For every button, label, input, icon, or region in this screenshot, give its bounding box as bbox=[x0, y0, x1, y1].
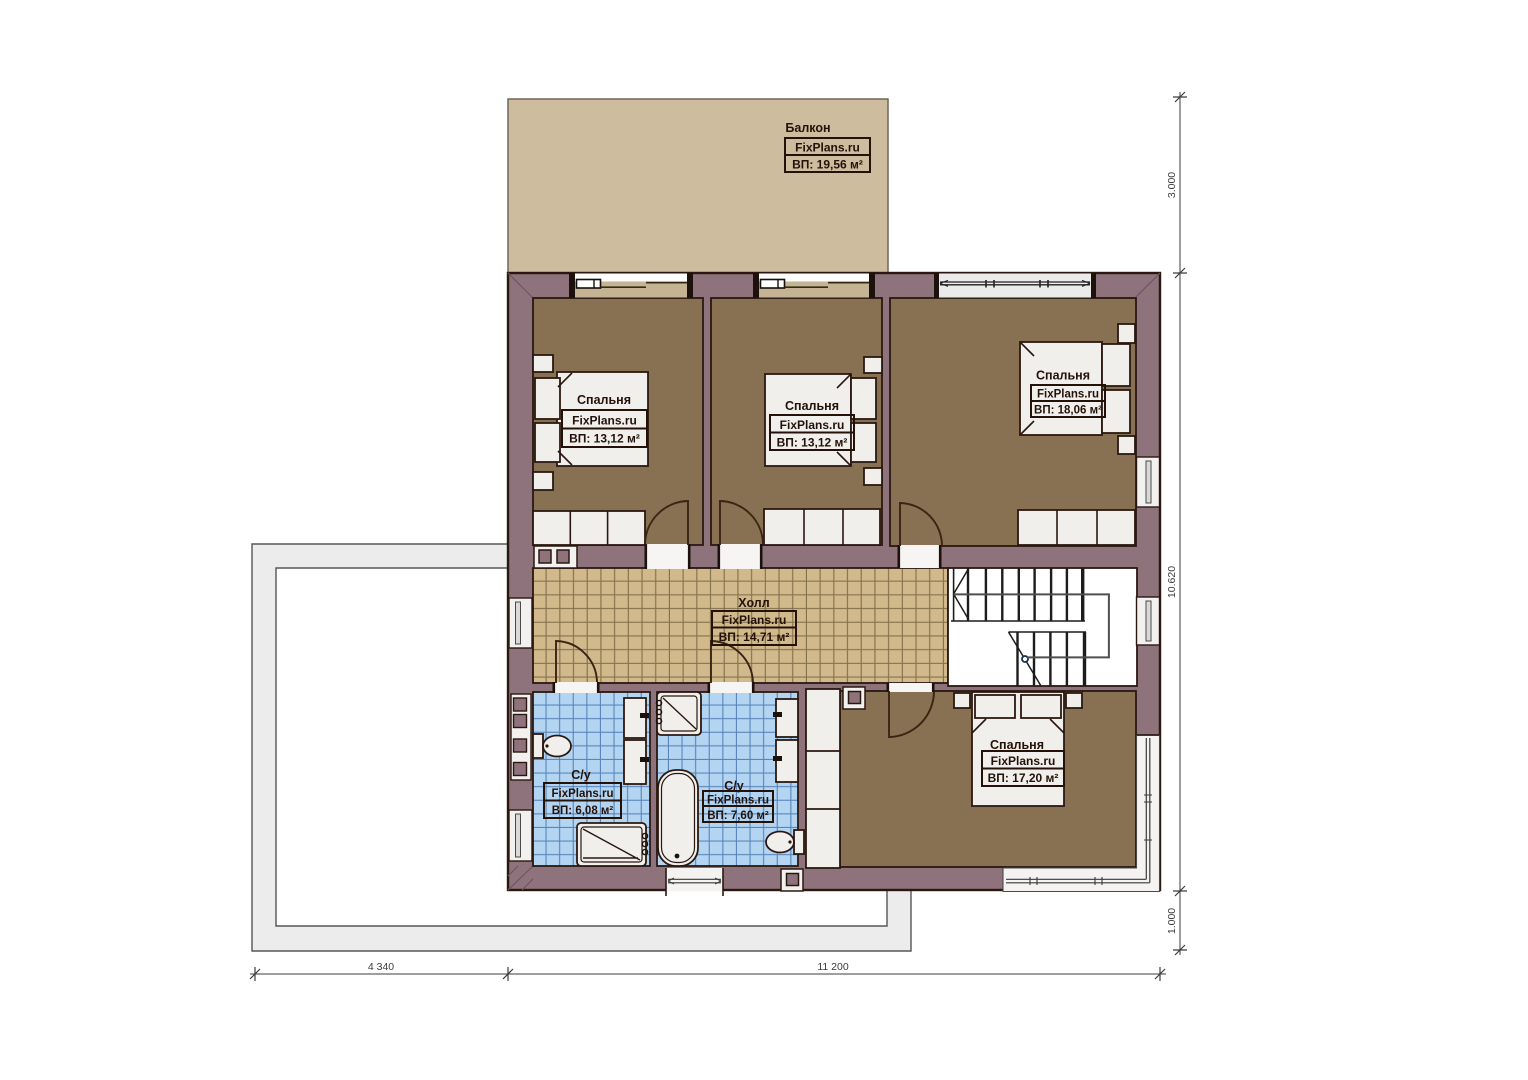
svg-text:FixPlans.ru: FixPlans.ru bbox=[780, 418, 845, 432]
svg-text:FixPlans.ru: FixPlans.ru bbox=[795, 141, 860, 155]
svg-text:ВП: 13,12 м²: ВП: 13,12 м² bbox=[777, 436, 848, 450]
svg-text:FixPlans.ru: FixPlans.ru bbox=[991, 754, 1056, 768]
svg-text:4 340: 4 340 bbox=[368, 961, 394, 973]
svg-text:Спальня: Спальня bbox=[785, 399, 839, 413]
svg-text:ВП: 19,56 м²: ВП: 19,56 м² bbox=[792, 158, 863, 172]
svg-text:FixPlans.ru: FixPlans.ru bbox=[552, 788, 614, 800]
svg-text:Спальня: Спальня bbox=[990, 738, 1044, 752]
svg-text:Спальня: Спальня bbox=[577, 393, 631, 407]
svg-text:3.000: 3.000 bbox=[1166, 172, 1178, 198]
svg-text:FixPlans.ru: FixPlans.ru bbox=[572, 414, 637, 428]
svg-text:ВП: 14,71 м²: ВП: 14,71 м² bbox=[719, 630, 790, 644]
svg-text:10.620: 10.620 bbox=[1166, 566, 1178, 598]
svg-text:FixPlans.ru: FixPlans.ru bbox=[722, 613, 787, 627]
svg-text:С/у: С/у bbox=[571, 768, 591, 782]
svg-text:ВП: 6,08 м²: ВП: 6,08 м² bbox=[552, 805, 614, 817]
svg-text:FixPlans.ru: FixPlans.ru bbox=[1037, 389, 1099, 401]
svg-text:1.000: 1.000 bbox=[1166, 908, 1178, 934]
svg-text:Спальня: Спальня bbox=[1036, 369, 1090, 383]
svg-text:ВП: 18,06 м²: ВП: 18,06 м² bbox=[1034, 405, 1102, 417]
svg-text:ВП: 17,20 м²: ВП: 17,20 м² bbox=[988, 771, 1059, 785]
svg-text:FixPlans.ru: FixPlans.ru bbox=[707, 795, 769, 807]
svg-text:Балкон: Балкон bbox=[785, 121, 830, 135]
svg-text:11 200: 11 200 bbox=[817, 961, 848, 973]
svg-text:ВП: 7,60 м²: ВП: 7,60 м² bbox=[707, 810, 769, 822]
svg-text:Холл: Холл bbox=[738, 596, 769, 610]
svg-text:ВП: 13,12 м²: ВП: 13,12 м² bbox=[569, 432, 640, 446]
